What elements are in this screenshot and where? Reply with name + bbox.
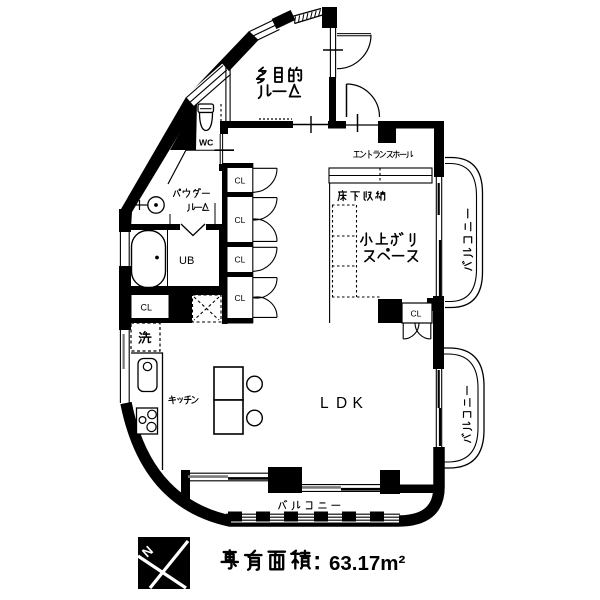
svg-text:WC: WC [199,138,213,148]
svg-text:UB: UB [179,255,194,267]
svg-text:63.17m²: 63.17m² [329,552,406,575]
svg-text:CL: CL [235,215,246,225]
svg-text:L: L [320,395,329,412]
svg-text:CL: CL [411,309,422,319]
svg-text:CL: CL [235,255,246,265]
svg-text:D: D [336,395,347,412]
svg-text:CL: CL [141,303,153,313]
svg-text:CL: CL [235,176,246,186]
svg-text:CL: CL [235,293,246,303]
svg-text:K: K [353,395,364,412]
